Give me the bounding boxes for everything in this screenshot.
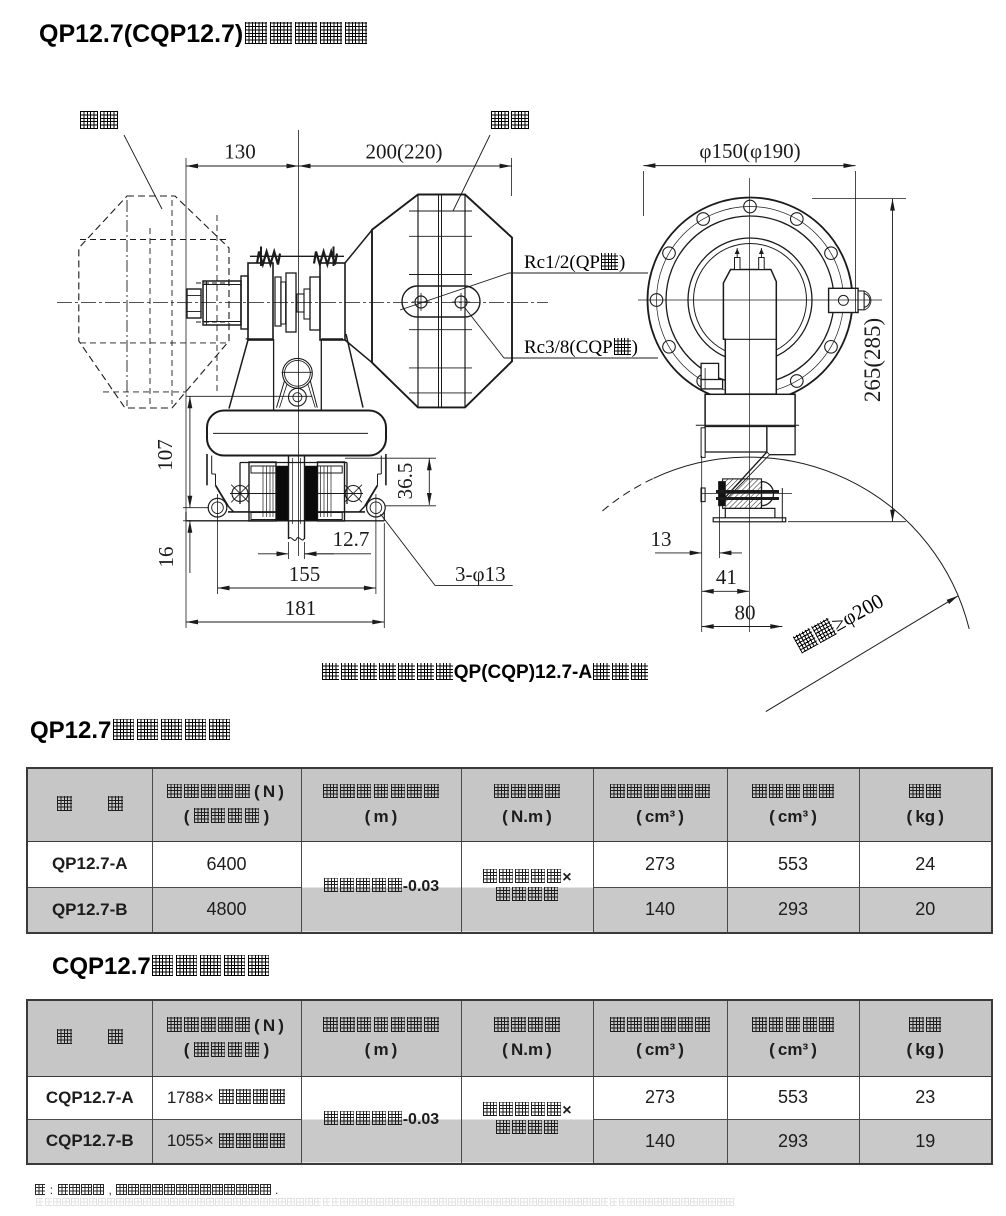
svg-text:107: 107 bbox=[153, 439, 177, 471]
svg-text:12.7: 12.7 bbox=[333, 527, 370, 551]
svg-text:80: 80 bbox=[735, 601, 756, 625]
svg-text:200(220): 200(220) bbox=[366, 140, 443, 164]
svg-text:3-φ13: 3-φ13 bbox=[455, 562, 506, 586]
svg-text:36.5: 36.5 bbox=[393, 463, 417, 500]
svg-text:155: 155 bbox=[289, 562, 321, 586]
svg-text:13: 13 bbox=[651, 527, 672, 551]
svg-text:130: 130 bbox=[224, 140, 256, 164]
svg-text:16: 16 bbox=[154, 547, 178, 568]
svg-text:41: 41 bbox=[716, 565, 737, 589]
svg-text:181: 181 bbox=[285, 596, 317, 620]
svg-text:φ150(φ190): φ150(φ190) bbox=[699, 139, 800, 163]
svg-text:265(285): 265(285) bbox=[860, 318, 885, 402]
